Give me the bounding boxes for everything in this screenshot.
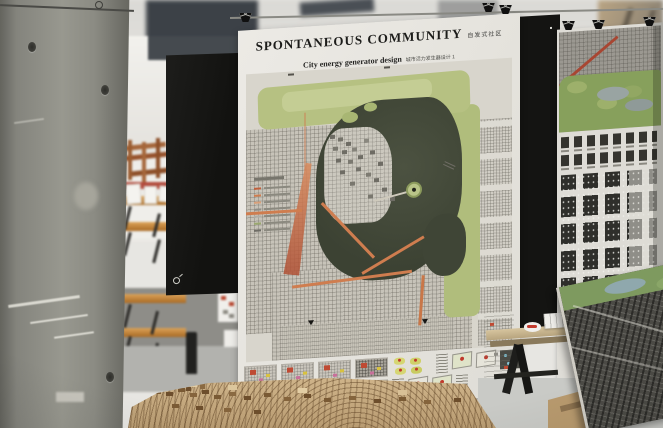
- logo-mark-icon: [173, 277, 180, 284]
- map-marker-icon: [308, 320, 314, 325]
- chalk-scuff: [14, 118, 44, 124]
- formwork-hole: [106, 372, 114, 382]
- tape-roll: [524, 322, 541, 332]
- concrete-patch: [74, 182, 98, 210]
- main-poster: SPONTANEOUS COMMUNITY自发式社区 City energy g…: [238, 13, 520, 413]
- chalk-scuff: [8, 295, 80, 308]
- paper-sheet: [144, 186, 157, 204]
- concrete-column: [0, 0, 132, 428]
- park-area: [559, 69, 661, 132]
- table-leg: [515, 344, 533, 395]
- bench-plank: [120, 294, 186, 303]
- chalk-scuff: [30, 314, 88, 324]
- orange-route: [304, 113, 306, 171]
- map-thumbnail: [355, 357, 388, 378]
- building-blocks: [330, 135, 335, 139]
- pin-dot: [550, 27, 552, 29]
- text-lines: [436, 354, 448, 374]
- paper-sheet: [125, 184, 141, 205]
- trash-bin: [186, 332, 197, 374]
- map-marker-icon: [422, 319, 428, 324]
- pinned-drawing: [218, 292, 238, 322]
- lake: [625, 98, 653, 112]
- exhibition-photo: SPONTANEOUS COMMUNITY自发式社区 City energy g…: [0, 0, 663, 428]
- formwork-hole: [101, 85, 109, 95]
- legend-color-chips: [254, 187, 261, 189]
- map-thumbnail: [318, 360, 351, 381]
- site-map: [246, 58, 512, 363]
- turnbuckle-ring-icon: [95, 1, 103, 9]
- side-poster-masterplan: [559, 25, 661, 132]
- chalk-scuff: [54, 331, 94, 339]
- poster-title-chinese: 自发式社区: [467, 31, 502, 39]
- yellow-diagram-group: [392, 355, 432, 377]
- lake: [597, 86, 629, 102]
- pinned-drawing: [224, 330, 239, 347]
- formwork-hole: [28, 42, 36, 52]
- concrete-patch: [56, 392, 84, 402]
- black-board-left: [166, 53, 248, 296]
- lake-park: [422, 213, 466, 278]
- wood-sculpture-post: [128, 140, 132, 180]
- building-clearing: [324, 125, 392, 225]
- site-plan-diagram: [452, 351, 472, 370]
- map-label-mark: [288, 73, 294, 75]
- tree-cluster: [567, 81, 587, 94]
